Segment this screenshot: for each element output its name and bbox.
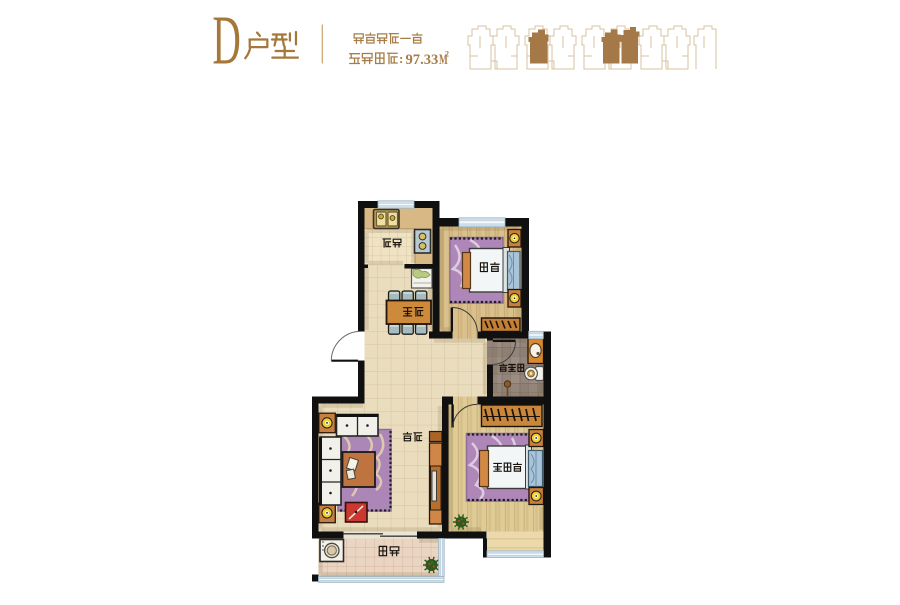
svg-text:2: 2: [445, 50, 449, 59]
svg-text:97.33: 97.33: [406, 52, 439, 68]
svg-text:D: D: [213, 2, 241, 80]
svg-text::: :: [399, 51, 403, 66]
